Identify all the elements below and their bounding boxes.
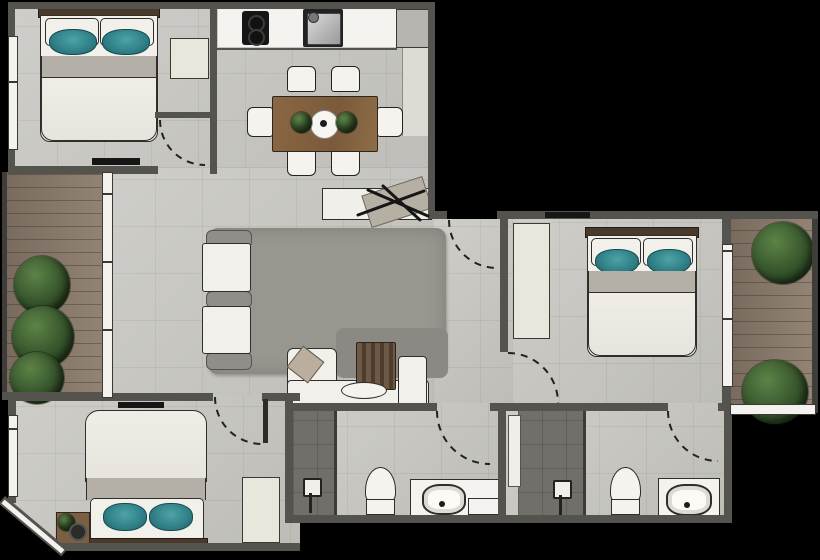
bed2-wardrobe (513, 223, 550, 339)
bed1-blanket-band (41, 56, 157, 78)
bed3-duvet (85, 410, 207, 482)
wall-hall-bed2-divider (500, 219, 508, 352)
sofa-armrest-right (398, 356, 427, 410)
bath1-shower (293, 411, 335, 517)
wall-bed3-bath1-divider (285, 393, 293, 521)
bed3-teal-pillow-left (103, 503, 147, 531)
wall-top-right-section-a (433, 211, 447, 219)
wall-bath1-bath2-divider (498, 403, 506, 521)
bed1-teal-pillow-left (49, 29, 97, 55)
bed2-balcony-wall-stub-top (722, 219, 731, 244)
wall-right-upper-block (428, 2, 435, 219)
bath1-shower-glass (334, 411, 337, 517)
coffee-table-oval (341, 382, 387, 399)
wall-bath-top-a (285, 403, 437, 411)
balcony-right-bottom-sill (730, 404, 816, 415)
bath2-toilet-tank (611, 499, 640, 515)
bed1-teal-pillow-right (102, 29, 150, 55)
dining-chair-top-2 (331, 66, 360, 92)
bath2-cabinet-column (508, 415, 521, 487)
wall-bed1-door-stub (155, 112, 217, 118)
bed3-blanket-band (86, 478, 206, 500)
balcony-left-bottom-wall (2, 392, 108, 400)
wall-bed1-kitchen-divider (210, 2, 217, 119)
table-centerpiece-dot (320, 120, 327, 127)
bed1-window-left (8, 36, 18, 150)
wall-bed1-nook-right (210, 112, 217, 174)
armchair-2-seat (202, 306, 251, 354)
bed2-tv (545, 212, 590, 218)
balcony-left-glass-wall (102, 172, 113, 398)
bed1-duvet (41, 77, 157, 141)
bath2-shower-fixture (553, 480, 572, 499)
table-plant-left (291, 112, 312, 133)
nightstand-bowl (69, 523, 87, 541)
bath1-toilet-tank (366, 499, 395, 515)
bath2-shower-glass (583, 411, 586, 517)
balcony-right-shrub-top (752, 222, 814, 284)
armchair-2-back (206, 352, 252, 370)
bed2-duvet (588, 292, 696, 356)
balcony-left-outer-rail (2, 172, 7, 396)
bed3-door-leaf (263, 399, 268, 443)
bed2-blanket-band (588, 271, 696, 293)
kitchen-faucet (308, 12, 319, 23)
wall-bath-bottom (285, 515, 732, 523)
bath2-shower-stem (559, 495, 562, 515)
dining-chair-bottom-2 (331, 150, 360, 176)
bed2-glass-door-to-balcony (722, 244, 733, 387)
bath1-faucet (439, 501, 445, 507)
dining-chair-right (377, 107, 403, 137)
armchair-1-seat (202, 243, 251, 292)
wall-top-upper-block (8, 2, 435, 9)
bed3-teal-pillow-right (149, 503, 193, 531)
wall-bath2-right (724, 403, 732, 523)
bath2-faucet (684, 502, 690, 508)
bed3-wardrobe (242, 477, 280, 543)
bath2-sink (666, 484, 712, 516)
dining-chair-bottom-1 (287, 150, 316, 176)
fridge (396, 9, 430, 48)
floor-plan (0, 0, 820, 560)
balcony-right-outer-rail (812, 219, 818, 413)
dining-chair-left (247, 107, 273, 137)
bed3-tv (118, 402, 164, 408)
bath1-shower-stem (309, 493, 312, 513)
bath1-shelf (468, 498, 502, 515)
bath1-sink (422, 484, 466, 515)
bed3-window-left (8, 415, 18, 497)
cooktop-burner-2 (248, 29, 265, 46)
table-plant-right (336, 112, 357, 133)
wall-bed1-bottom (8, 166, 158, 174)
bed1-tv (92, 158, 140, 165)
bed1-wardrobe (170, 38, 209, 79)
bath1-shower-fixture (303, 478, 322, 497)
dining-chair-top-1 (287, 66, 316, 92)
wall-bed3-bottom (60, 543, 300, 551)
wall-bath-top-b (490, 403, 668, 411)
bath2-shower (518, 411, 584, 517)
